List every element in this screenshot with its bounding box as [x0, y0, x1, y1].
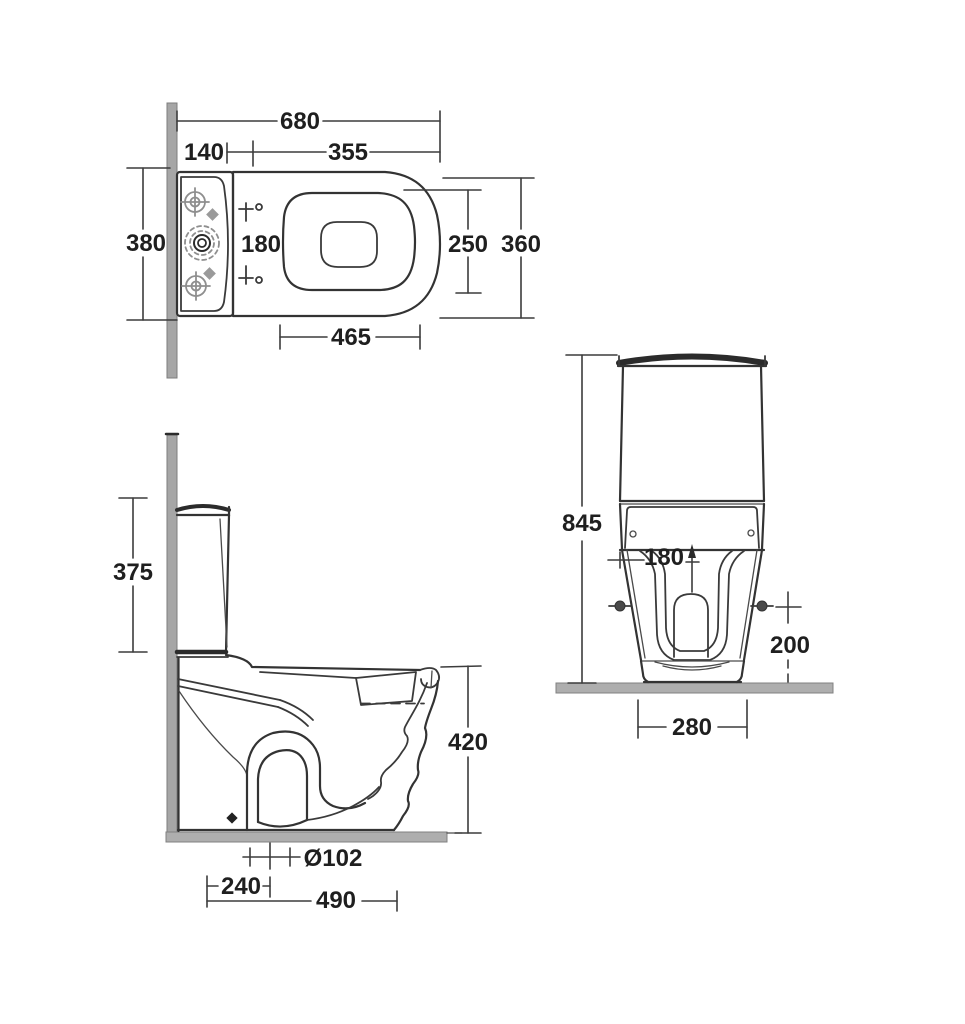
sump-arch	[674, 594, 708, 657]
bowl-water-area-plan	[321, 222, 377, 267]
dim-label-280: 280	[672, 714, 712, 741]
dim-label-240: 240	[221, 873, 261, 900]
dim-label-250: 250	[448, 231, 488, 258]
dim-label-360: 360	[501, 231, 541, 258]
floor-section-side	[166, 832, 447, 842]
dim-label-420: 420	[448, 729, 488, 756]
fixing-hole-right	[748, 530, 754, 536]
dim-label-490: 490	[316, 887, 356, 914]
dim-rim-height: 420	[441, 666, 488, 833]
trap-section	[226, 732, 379, 831]
wc-technical-drawing: 680 140 355 380 180	[0, 0, 965, 1024]
seat-opening-plan	[283, 193, 415, 290]
cistern-front	[618, 356, 766, 504]
dim-label-465: 465	[331, 324, 371, 351]
dim-cistern-depth: 140	[184, 139, 253, 166]
top-view: 680 140 355 380 180	[126, 103, 541, 378]
dim-label-680: 680	[280, 108, 320, 135]
flush-button-icon	[185, 226, 219, 260]
dim-outlet-setout: 240	[207, 873, 270, 907]
bowl-front	[609, 504, 773, 682]
pan-side-outline	[178, 655, 439, 831]
dim-label-140: 140	[184, 139, 224, 166]
dim-overall-height: 845	[562, 355, 617, 683]
dim-hinge-to-front: 355	[253, 139, 440, 166]
dim-label-355: 355	[328, 139, 368, 166]
pedestal-sweep-line	[179, 691, 247, 776]
front-view: 845 180 200 280	[556, 355, 833, 741]
dim-label-180-plan: 180	[241, 231, 281, 258]
dim-label-375: 375	[113, 559, 153, 586]
dim-label-o102: Ø102	[304, 845, 363, 872]
bowl-back-panel	[625, 507, 759, 548]
dim-cistern-height: 375	[113, 498, 153, 652]
dim-label-845: 845	[562, 510, 602, 537]
side-view: 375 420 Ø102 240	[113, 434, 488, 914]
cistern-side	[177, 506, 229, 657]
technical-drawing-page: 680 140 355 380 180	[0, 0, 965, 1024]
dim-label-180-front: 180	[644, 544, 684, 571]
rim-tip-section	[420, 668, 439, 687]
wall-section-side	[167, 435, 177, 842]
dim-seat-inner-width: 250	[404, 190, 488, 293]
outlet-centre-mark	[226, 812, 237, 823]
cistern-lid-front	[619, 357, 765, 364]
bowl-inner-surface	[368, 683, 427, 799]
floor-section-front	[556, 683, 833, 693]
fixing-target-top-icon	[181, 188, 219, 221]
fixing-hole-left	[630, 531, 636, 537]
side-fixing-bolt-left	[609, 601, 631, 611]
dim-bowl-length: 465	[280, 324, 420, 351]
flush-shelf	[356, 672, 416, 705]
dim-outlet-diameter: Ø102	[243, 843, 362, 872]
dim-fixing-height: 200	[770, 592, 810, 682]
fixing-target-bottom-icon	[182, 267, 216, 300]
dim-base-width: 280	[638, 700, 747, 741]
dim-label-200: 200	[770, 632, 810, 659]
wall-section-plan	[167, 103, 177, 378]
dim-label-380: 380	[126, 230, 166, 257]
